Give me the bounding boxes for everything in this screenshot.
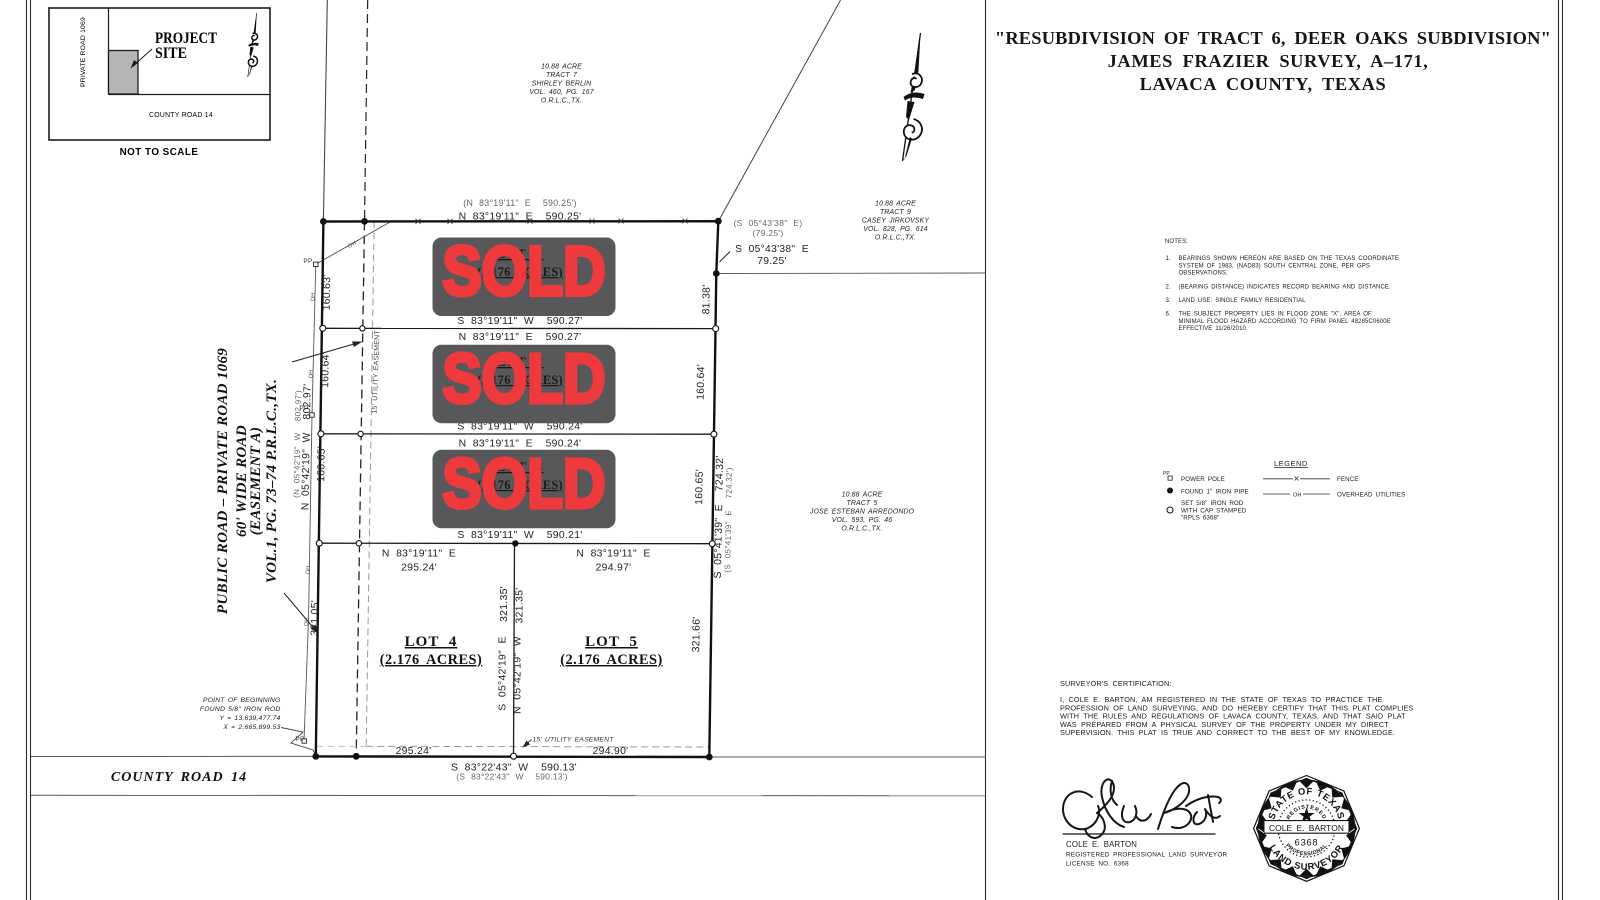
svg-text:PUBLIC ROAD – PRIVATE ROAD 106: PUBLIC ROAD – PRIVATE ROAD 1069 <box>215 348 231 614</box>
svg-text:(BEARING DISTANCE) INDICATES R: (BEARING DISTANCE) INDICATES RECORD BEAR… <box>1179 285 1391 291</box>
svg-text:PP: PP <box>303 258 312 265</box>
svg-text:Y = 13,639,477.74: Y = 13,639,477.74 <box>219 715 280 722</box>
svg-text:S 83°19'11" W 590.27': S 83°19'11" W 590.27' <box>457 316 582 327</box>
svg-text:(S 05°41'39" E 724.32'): (S 05°41'39" E 724.32') <box>723 467 734 572</box>
svg-text:BEARINGS SHOWN HEREON ARE BASE: BEARINGS SHOWN HEREON ARE BASED ON THE T… <box>1179 256 1399 262</box>
svg-text:FOUND 1" IRON PIPE: FOUND 1" IRON PIPE <box>1181 489 1249 496</box>
svg-text:VOL. 460, PG. 167: VOL. 460, PG. 167 <box>529 89 594 96</box>
svg-text:N 83°19'11" E: N 83°19'11" E <box>576 549 650 560</box>
svg-text:JAMES FRAZIER SURVEY, A–171,: JAMES FRAZIER SURVEY, A–171, <box>1108 51 1429 71</box>
svg-text:FENCE: FENCE <box>1337 476 1358 483</box>
svg-text:N 83°19'11" E: N 83°19'11" E <box>382 549 456 560</box>
svg-text:LOT 5: LOT 5 <box>585 634 638 650</box>
svg-text:295.24': 295.24' <box>396 746 432 757</box>
svg-text:OH: OH <box>310 292 316 301</box>
svg-text:SURVEYOR'S CERTIFICATION:: SURVEYOR'S CERTIFICATION: <box>1060 679 1172 688</box>
svg-text:321.66': 321.66' <box>691 616 703 652</box>
svg-text:160.64': 160.64' <box>696 364 708 400</box>
svg-text:EFFECTIVE 11/26/2010.: EFFECTIVE 11/26/2010. <box>1179 326 1248 332</box>
svg-text:160.64': 160.64' <box>320 352 332 388</box>
svg-text:81.38': 81.38' <box>701 284 713 314</box>
svg-text:TRACT 5: TRACT 5 <box>847 500 878 507</box>
svg-text:N 83°19'11" E 590.25': N 83°19'11" E 590.25' <box>459 212 582 223</box>
svg-text:"RESUBDIVISION OF TRACT 6, DEE: "RESUBDIVISION OF TRACT 6, DEER OAKS SUB… <box>995 28 1551 48</box>
svg-text:(EASEMENT A): (EASEMENT A) <box>248 427 264 535</box>
svg-text:WITH CAP STAMPED: WITH CAP STAMPED <box>1181 507 1247 514</box>
svg-text:LEGEND: LEGEND <box>1274 459 1308 468</box>
svg-text:X = 2,665,899.53: X = 2,665,899.53 <box>222 724 280 731</box>
svg-text:OVERHEAD UTILITIES: OVERHEAD UTILITIES <box>1337 491 1405 498</box>
svg-text:160.63': 160.63' <box>322 274 334 310</box>
svg-text:LOT 4: LOT 4 <box>405 634 458 650</box>
svg-text:(S 05°43'38" E): (S 05°43'38" E) <box>733 218 802 228</box>
svg-text:"RPLS 6368": "RPLS 6368" <box>1181 515 1219 522</box>
svg-text:321.35': 321.35' <box>515 588 526 624</box>
svg-text:JOSE ESTEBAN ARREDONDO: JOSE ESTEBAN ARREDONDO <box>809 509 915 516</box>
svg-text:6368: 6368 <box>1295 838 1319 848</box>
svg-text:10.88 ACRE: 10.88 ACRE <box>875 201 916 208</box>
svg-text:OH: OH <box>1293 492 1301 498</box>
svg-text:SOLD: SOLD <box>443 339 606 417</box>
svg-text:321.35': 321.35' <box>499 586 510 622</box>
svg-text:(2.176 ACRES): (2.176 ACRES) <box>380 652 482 668</box>
svg-text:SHIRLEY BERLIN: SHIRLEY BERLIN <box>532 81 591 88</box>
svg-text:CASEY JIRKOVSKY: CASEY JIRKOVSKY <box>862 218 931 225</box>
svg-text:S 83°19'11" W 590.21': S 83°19'11" W 590.21' <box>457 530 582 541</box>
svg-text:6.: 6. <box>1166 312 1171 318</box>
svg-text:SITE: SITE <box>155 45 187 62</box>
svg-text:VOL.1, PG. 73–74 P.R.L.C.,TX.: VOL.1, PG. 73–74 P.R.L.C.,TX. <box>264 379 280 583</box>
svg-text:O.R.L.C.,TX.: O.R.L.C.,TX. <box>875 235 916 242</box>
svg-text:COLE E. BARTON: COLE E. BARTON <box>1269 823 1344 833</box>
svg-text:PP: PP <box>295 736 304 743</box>
svg-text:LAND USE: SINGLE FAMILY RESIDE: LAND USE: SINGLE FAMILY RESIDENTIAL <box>1179 298 1307 304</box>
svg-text:3.: 3. <box>1166 298 1171 304</box>
svg-text:PRIVATE ROAD 1069: PRIVATE ROAD 1069 <box>80 17 87 87</box>
svg-text:OH: OH <box>304 617 310 626</box>
svg-text:(S 83°22'43" W 590.13'): (S 83°22'43" W 590.13') <box>456 772 567 782</box>
svg-text:(N 83°19'11" E 590.25'): (N 83°19'11" E 590.25') <box>463 198 576 208</box>
svg-text:SET 5/8" IRON ROD: SET 5/8" IRON ROD <box>1181 500 1244 507</box>
svg-text:SYSTEM OF 1983, (NAD83) SOUTH: SYSTEM OF 1983, (NAD83) SOUTH CENTRAL ZO… <box>1179 263 1371 269</box>
svg-text:295.24': 295.24' <box>401 563 437 574</box>
svg-text:LAVACA COUNTY, TEXAS: LAVACA COUNTY, TEXAS <box>1140 74 1387 94</box>
svg-text:294.90': 294.90' <box>593 746 629 757</box>
svg-text:NOTES:: NOTES: <box>1165 239 1188 245</box>
svg-text:MINIMAL FLOOD HAZARD ACCORDING: MINIMAL FLOOD HAZARD ACCORDING TO FIRM P… <box>1179 319 1391 325</box>
svg-text:10.88 ACRE: 10.88 ACRE <box>541 64 582 71</box>
svg-text:(2.176 ACRES): (2.176 ACRES) <box>560 652 662 668</box>
svg-text:15' UTILITY EASEMENT: 15' UTILITY EASEMENT <box>532 737 614 744</box>
svg-text:S 05°43'38" E: S 05°43'38" E <box>735 244 809 255</box>
svg-text:SOLD: SOLD <box>443 232 606 310</box>
svg-text:VOL. 828, PG. 614: VOL. 828, PG. 614 <box>863 226 927 233</box>
svg-text:OH: OH <box>308 369 314 378</box>
svg-text:S 05°42'19" E: S 05°42'19" E <box>498 636 509 710</box>
svg-text:N 05°42'19" W: N 05°42'19" W <box>513 636 524 714</box>
svg-text:160.65': 160.65' <box>316 446 328 482</box>
svg-text:LICENSE NO. 6368: LICENSE NO. 6368 <box>1066 861 1129 868</box>
svg-text:O.R.L.C.,TX.: O.R.L.C.,TX. <box>541 98 582 105</box>
svg-text:REGISTERED PROFESSIONAL LAND S: REGISTERED PROFESSIONAL LAND SURVEYOR <box>1066 852 1228 859</box>
svg-text:THE SUBJECT PROPERTY LIES IN F: THE SUBJECT PROPERTY LIES IN FLOOD ZONE … <box>1179 312 1373 318</box>
svg-text:NOT TO SCALE: NOT TO SCALE <box>120 147 199 158</box>
svg-text:2.: 2. <box>1166 285 1171 291</box>
svg-text:321.05': 321.05' <box>310 600 322 636</box>
svg-text:TRACT 7: TRACT 7 <box>546 72 578 79</box>
svg-text:POINT OF BEGINNING: POINT OF BEGINNING <box>203 697 281 704</box>
svg-text:COUNTY ROAD 14: COUNTY ROAD 14 <box>149 110 213 119</box>
svg-text:TRACT 9: TRACT 9 <box>880 209 911 216</box>
svg-text:79.25': 79.25' <box>757 256 787 267</box>
svg-text:COLE E. BARTON: COLE E. BARTON <box>1066 840 1137 849</box>
svg-text:POWER POLE: POWER POLE <box>1181 476 1225 483</box>
svg-text:O.R.L.C.,TX.: O.R.L.C.,TX. <box>841 526 882 533</box>
svg-text:FOUND 5/8" IRON ROD: FOUND 5/8" IRON ROD <box>200 706 281 713</box>
svg-text:VOL. 593, PG. 46: VOL. 593, PG. 46 <box>832 517 892 524</box>
svg-text:(79.25'): (79.25') <box>753 228 784 238</box>
svg-text:OH: OH <box>305 565 311 574</box>
svg-text:COUNTY ROAD 14: COUNTY ROAD 14 <box>111 770 247 785</box>
svg-text:PP: PP <box>299 405 308 412</box>
svg-text:1.: 1. <box>1166 256 1171 262</box>
svg-text:SUPERVISION. THIS PLAT IS TRU: SUPERVISION. THIS PLAT IS TRUE AND CORRE… <box>1060 728 1395 737</box>
svg-text:160.65': 160.65' <box>694 469 706 505</box>
svg-text:SOLD: SOLD <box>443 444 606 522</box>
svg-text:10.88 ACRE: 10.88 ACRE <box>842 492 883 499</box>
svg-text:294.97': 294.97' <box>596 563 632 574</box>
svg-text:OBSERVATIONS.: OBSERVATIONS. <box>1179 271 1229 277</box>
